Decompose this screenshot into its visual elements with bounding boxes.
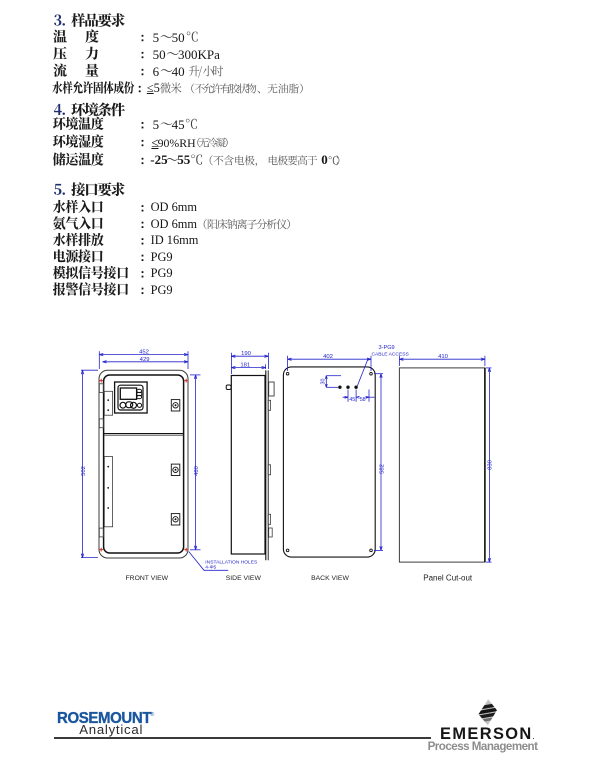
svg-text:502: 502 — [81, 466, 87, 476]
svg-text:830: 830 — [488, 459, 494, 470]
svg-text:402: 402 — [323, 354, 333, 360]
svg-text:30: 30 — [321, 379, 327, 385]
svg-text:480: 480 — [194, 465, 200, 476]
svg-text:190: 190 — [241, 351, 252, 357]
svg-text:Panel Cut-out: Panel Cut-out — [423, 574, 473, 583]
svg-text:58: 58 — [360, 397, 366, 403]
svg-text:582: 582 — [379, 464, 385, 474]
svg-text:45: 45 — [349, 397, 355, 403]
svg-text:INSTALLATION HOLES: INSTALLATION HOLES — [205, 559, 258, 565]
svg-text:3-PG9: 3-PG9 — [379, 345, 395, 351]
svg-text:181: 181 — [240, 362, 250, 368]
svg-text:BACK VIEW: BACK VIEW — [311, 575, 349, 582]
svg-text:SIDE VIEW: SIDE VIEW — [226, 575, 262, 582]
svg-text:410: 410 — [438, 354, 449, 360]
svg-text:CABLE ACCESS: CABLE ACCESS — [372, 351, 410, 357]
svg-text:4-Φ5: 4-Φ5 — [205, 565, 216, 571]
svg-text:FRONT VIEW: FRONT VIEW — [126, 575, 169, 582]
svg-text:429: 429 — [140, 357, 150, 363]
svg-text:452: 452 — [139, 349, 149, 355]
